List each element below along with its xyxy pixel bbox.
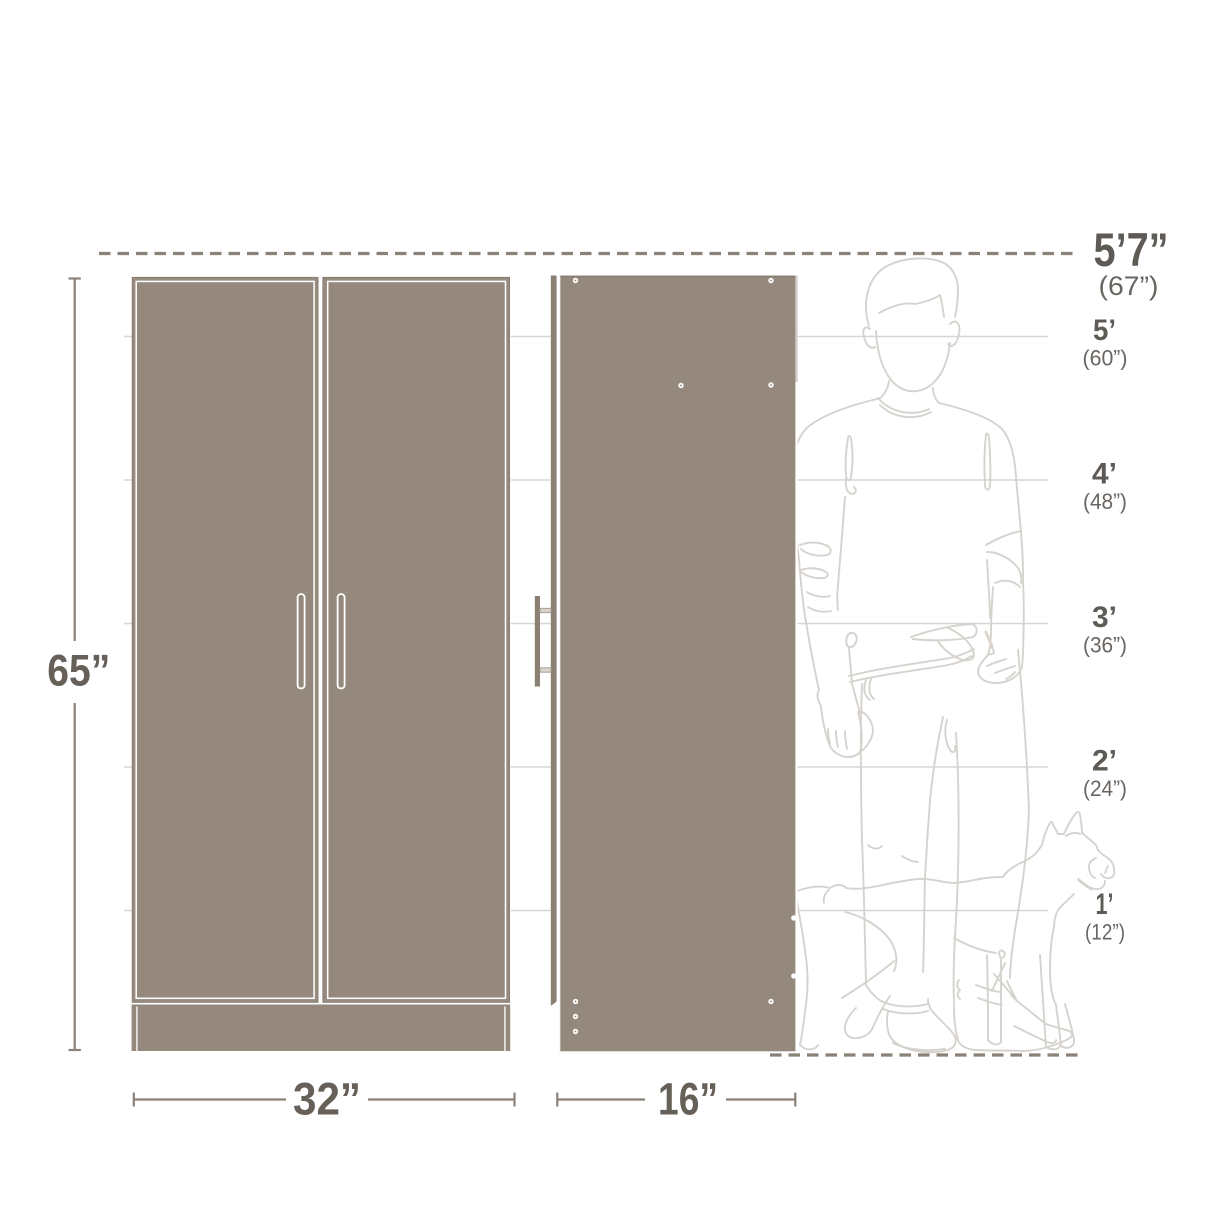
svg-text:(60”): (60”) bbox=[1083, 346, 1128, 371]
svg-text:5’: 5’ bbox=[1093, 314, 1116, 347]
svg-text:4’: 4’ bbox=[1092, 458, 1117, 491]
svg-text:3’: 3’ bbox=[1092, 601, 1117, 634]
svg-text:(67”): (67”) bbox=[1099, 271, 1159, 301]
svg-text:(36”): (36”) bbox=[1083, 633, 1127, 658]
svg-text:5’7”: 5’7” bbox=[1094, 223, 1169, 276]
svg-text:16”: 16” bbox=[658, 1074, 718, 1125]
svg-text:2’: 2’ bbox=[1092, 745, 1117, 778]
svg-text:(12”): (12”) bbox=[1085, 920, 1125, 945]
svg-text:(24”): (24”) bbox=[1083, 776, 1127, 801]
svg-text:32”: 32” bbox=[293, 1074, 361, 1125]
svg-text:65”: 65” bbox=[47, 647, 110, 696]
svg-text:1’: 1’ bbox=[1096, 888, 1114, 921]
svg-text:(48”): (48”) bbox=[1083, 489, 1127, 514]
